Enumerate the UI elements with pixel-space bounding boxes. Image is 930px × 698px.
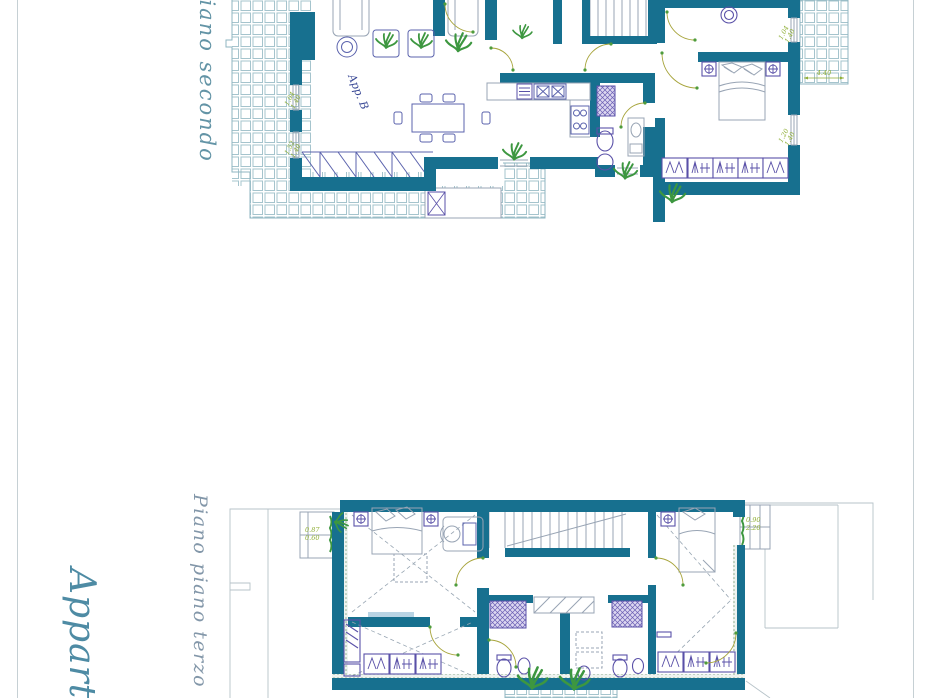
hob	[571, 106, 589, 134]
windows-second	[293, 18, 797, 174]
plant-icon	[614, 162, 637, 179]
wardrobe-row	[658, 652, 735, 672]
dim-win-third-right-b: 2.20	[745, 524, 760, 532]
shower	[612, 601, 642, 627]
nightstand	[354, 512, 368, 526]
plant-icon	[513, 25, 532, 39]
sheet-border-lines	[18, 0, 914, 698]
floor-third-title: Piano piano terzo	[189, 493, 211, 688]
dim-win-third-right-a: 0.90	[746, 516, 760, 524]
dim-balcony: 4.40	[816, 69, 831, 77]
sink	[633, 659, 644, 674]
floor-plan-third: 0.87 0.60 0.90 2.20	[230, 500, 873, 698]
side-table	[337, 37, 357, 57]
dining-table	[394, 94, 490, 142]
ceiling-fixture	[721, 7, 737, 23]
nightstand	[702, 62, 716, 76]
rug	[394, 554, 427, 582]
apartment-b-label: App. B	[345, 71, 371, 111]
nightstand	[661, 512, 675, 526]
dim-win-third-left-b: 0.60	[305, 534, 319, 542]
nightstand	[424, 512, 438, 526]
floor-plan-drawing: 4.40 1.04 1.40 1.52 1.40 1.04 1.40 1.20 …	[0, 0, 930, 698]
floor-plan-second: 4.40 1.04 1.40 1.52 1.40 1.04 1.40 1.20 …	[226, 0, 848, 222]
nightstand	[766, 62, 780, 76]
dim-win-third-left-a: 0.87	[305, 526, 320, 534]
bedroom-third-left	[354, 507, 483, 582]
desk-with-pc	[441, 517, 483, 551]
washing-machine	[597, 86, 615, 116]
bedroom-second	[662, 7, 788, 178]
sofa	[333, 0, 369, 36]
utility-room	[425, 188, 501, 218]
shower	[490, 601, 526, 628]
apartment-series-title: Appartam	[61, 565, 102, 698]
armchair	[408, 30, 434, 57]
floor-second-title: piano secondo	[195, 0, 219, 163]
kitchen	[487, 83, 590, 160]
shelf	[368, 612, 414, 617]
living-room-furniture	[333, 0, 532, 142]
dresser	[576, 652, 602, 668]
bedroom-third-right	[613, 508, 735, 677]
double-bed	[372, 507, 422, 554]
stairs-upper	[590, 0, 646, 36]
single-bed	[679, 508, 715, 572]
wardrobe-row	[662, 158, 788, 178]
bathroom-third-center	[497, 632, 602, 680]
double-bed	[719, 62, 765, 120]
armchair	[373, 30, 399, 57]
drawing-sheet: 4.40 1.04 1.40 1.52 1.40 1.04 1.40 1.20 …	[0, 0, 930, 698]
stairs-third	[489, 512, 626, 548]
wardrobe-row	[364, 654, 441, 674]
window-left-third: 0.87 0.60	[300, 512, 334, 558]
dresser	[576, 632, 602, 648]
plant-icon	[503, 143, 526, 160]
